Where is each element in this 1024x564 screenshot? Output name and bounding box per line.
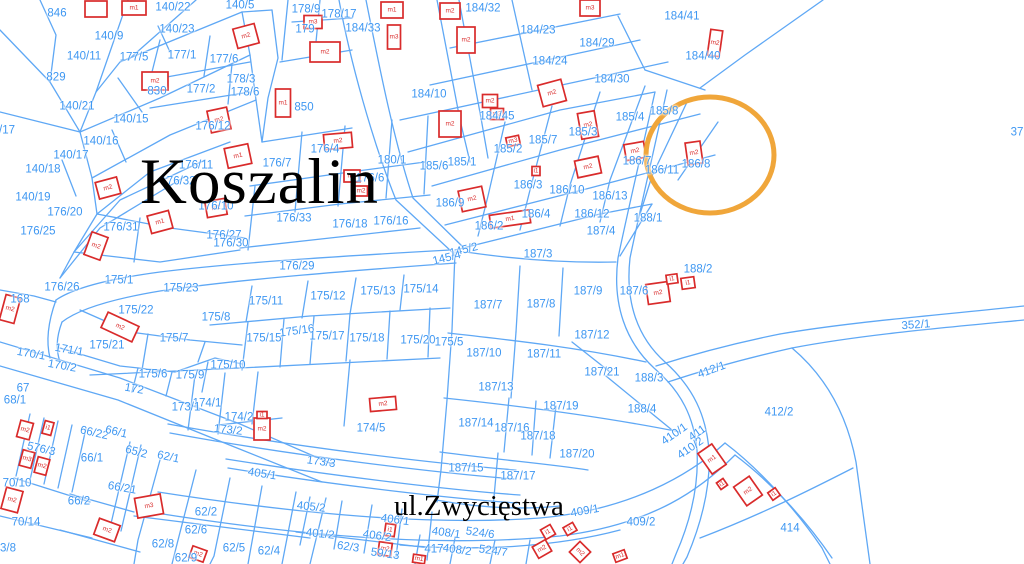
building-footprint: i1 bbox=[716, 478, 727, 489]
building-footprint: m2 bbox=[457, 27, 475, 53]
building-footprint: m3 bbox=[304, 16, 322, 29]
building-footprint: m2 bbox=[207, 107, 231, 133]
building-footprint: m2 bbox=[734, 476, 763, 506]
building-label: m2 bbox=[333, 137, 343, 145]
street-label: ul.Zwycięstwa bbox=[394, 492, 564, 521]
building-footprint: m2 bbox=[707, 29, 723, 56]
building-footprint: m2 bbox=[538, 79, 567, 106]
building-footprint: i1 bbox=[384, 523, 396, 536]
building-footprint: m2 bbox=[310, 42, 340, 62]
building-footprint: m2 bbox=[34, 457, 50, 476]
building-label: m2 bbox=[689, 149, 699, 157]
building-label: m2 bbox=[710, 39, 720, 47]
building-footprint: m2 bbox=[440, 3, 460, 19]
building-label: m2 bbox=[653, 289, 663, 297]
building-footprint: i1 bbox=[681, 277, 695, 290]
building-label: m3 bbox=[585, 5, 594, 12]
highlight-ellipse bbox=[646, 97, 774, 213]
building-label: m2 bbox=[320, 49, 329, 56]
building-label: m2 bbox=[445, 121, 454, 128]
building-footprint: m1 bbox=[122, 1, 146, 15]
parcel-lines-layer: m1m3m1m2m2m3m3m2m2m2m2m2m1m2m2m2m2m2m2m1… bbox=[0, 0, 1024, 564]
building-footprint: i1 bbox=[42, 421, 54, 436]
building-label: m3 bbox=[389, 34, 398, 41]
building-label: m2 bbox=[378, 400, 388, 408]
building-footprint: m2 bbox=[254, 418, 270, 440]
building-footprint: m2 bbox=[94, 518, 120, 541]
building-footprint: m3 bbox=[134, 494, 163, 518]
building-footprint: i1 bbox=[257, 412, 267, 419]
building-footprint: m2 bbox=[439, 111, 461, 137]
buildings-layer: m1m3m1m2m2m3m3m2m2m2m2m2m1m2m2m2m2m2m2m1… bbox=[0, 0, 780, 564]
building-footprint: i1 bbox=[532, 167, 540, 176]
building-footprint: m2 bbox=[189, 546, 207, 562]
building-footprint: m2 bbox=[101, 312, 139, 342]
building-footprint: m1 bbox=[276, 89, 291, 117]
building-footprint: m3 bbox=[580, 0, 600, 16]
building-label: m2 bbox=[380, 545, 390, 553]
building-label: m2 bbox=[485, 98, 494, 105]
building-label: i1 bbox=[533, 168, 538, 175]
building-label: m2 bbox=[150, 78, 159, 85]
building-label: m1 bbox=[387, 7, 396, 14]
building-footprint: m2 bbox=[624, 141, 646, 160]
building-label: m1 bbox=[278, 100, 287, 107]
city-label: Koszalin bbox=[140, 150, 379, 215]
building-footprint: m2 bbox=[685, 141, 703, 165]
building-footprint: m2 bbox=[491, 109, 504, 120]
building-footprint: m2 bbox=[0, 295, 21, 324]
building-footprint: m1 bbox=[413, 554, 426, 564]
building-footprint: m1 bbox=[698, 444, 726, 474]
building-label: m2 bbox=[492, 111, 501, 118]
building-footprint: m2 bbox=[1, 487, 23, 513]
cadastral-map-viewport[interactable]: m1m3m1m2m2m3m3m2m2m2m2m2m1m2m2m2m2m2m2m1… bbox=[0, 0, 1024, 564]
building-footprint: m2 bbox=[569, 541, 590, 562]
building-footprint: m2 bbox=[532, 540, 551, 559]
building-footprint: m2 bbox=[17, 420, 34, 440]
building-label: m2 bbox=[445, 8, 454, 15]
building-footprint bbox=[85, 1, 107, 17]
building-footprint: m2 bbox=[233, 23, 259, 48]
building-label: i1 bbox=[259, 412, 264, 419]
building-footprint: m2 bbox=[483, 95, 498, 108]
building-footprint: m1 bbox=[613, 550, 627, 563]
building-label: m3 bbox=[308, 19, 317, 26]
building-label: m1 bbox=[505, 215, 515, 223]
building-footprint: i1 bbox=[768, 488, 781, 501]
building-footprint: m2 bbox=[142, 72, 168, 90]
building-footprint: m2 bbox=[378, 542, 393, 557]
building-footprint: m2 bbox=[95, 177, 121, 199]
building-label: m1 bbox=[414, 555, 424, 563]
building-footprint: m2 bbox=[458, 186, 486, 212]
building-label: m1 bbox=[129, 5, 138, 12]
building-label: m2 bbox=[257, 426, 266, 433]
building-label: m2 bbox=[461, 37, 470, 44]
building-footprint: m3 bbox=[388, 25, 401, 49]
building-footprint: m1 bbox=[381, 2, 403, 18]
building-footprint: m2 bbox=[577, 111, 598, 140]
building-footprint: m3 bbox=[506, 135, 521, 147]
building-footprint: m2 bbox=[369, 396, 396, 411]
building-footprint: i1 bbox=[666, 274, 678, 284]
